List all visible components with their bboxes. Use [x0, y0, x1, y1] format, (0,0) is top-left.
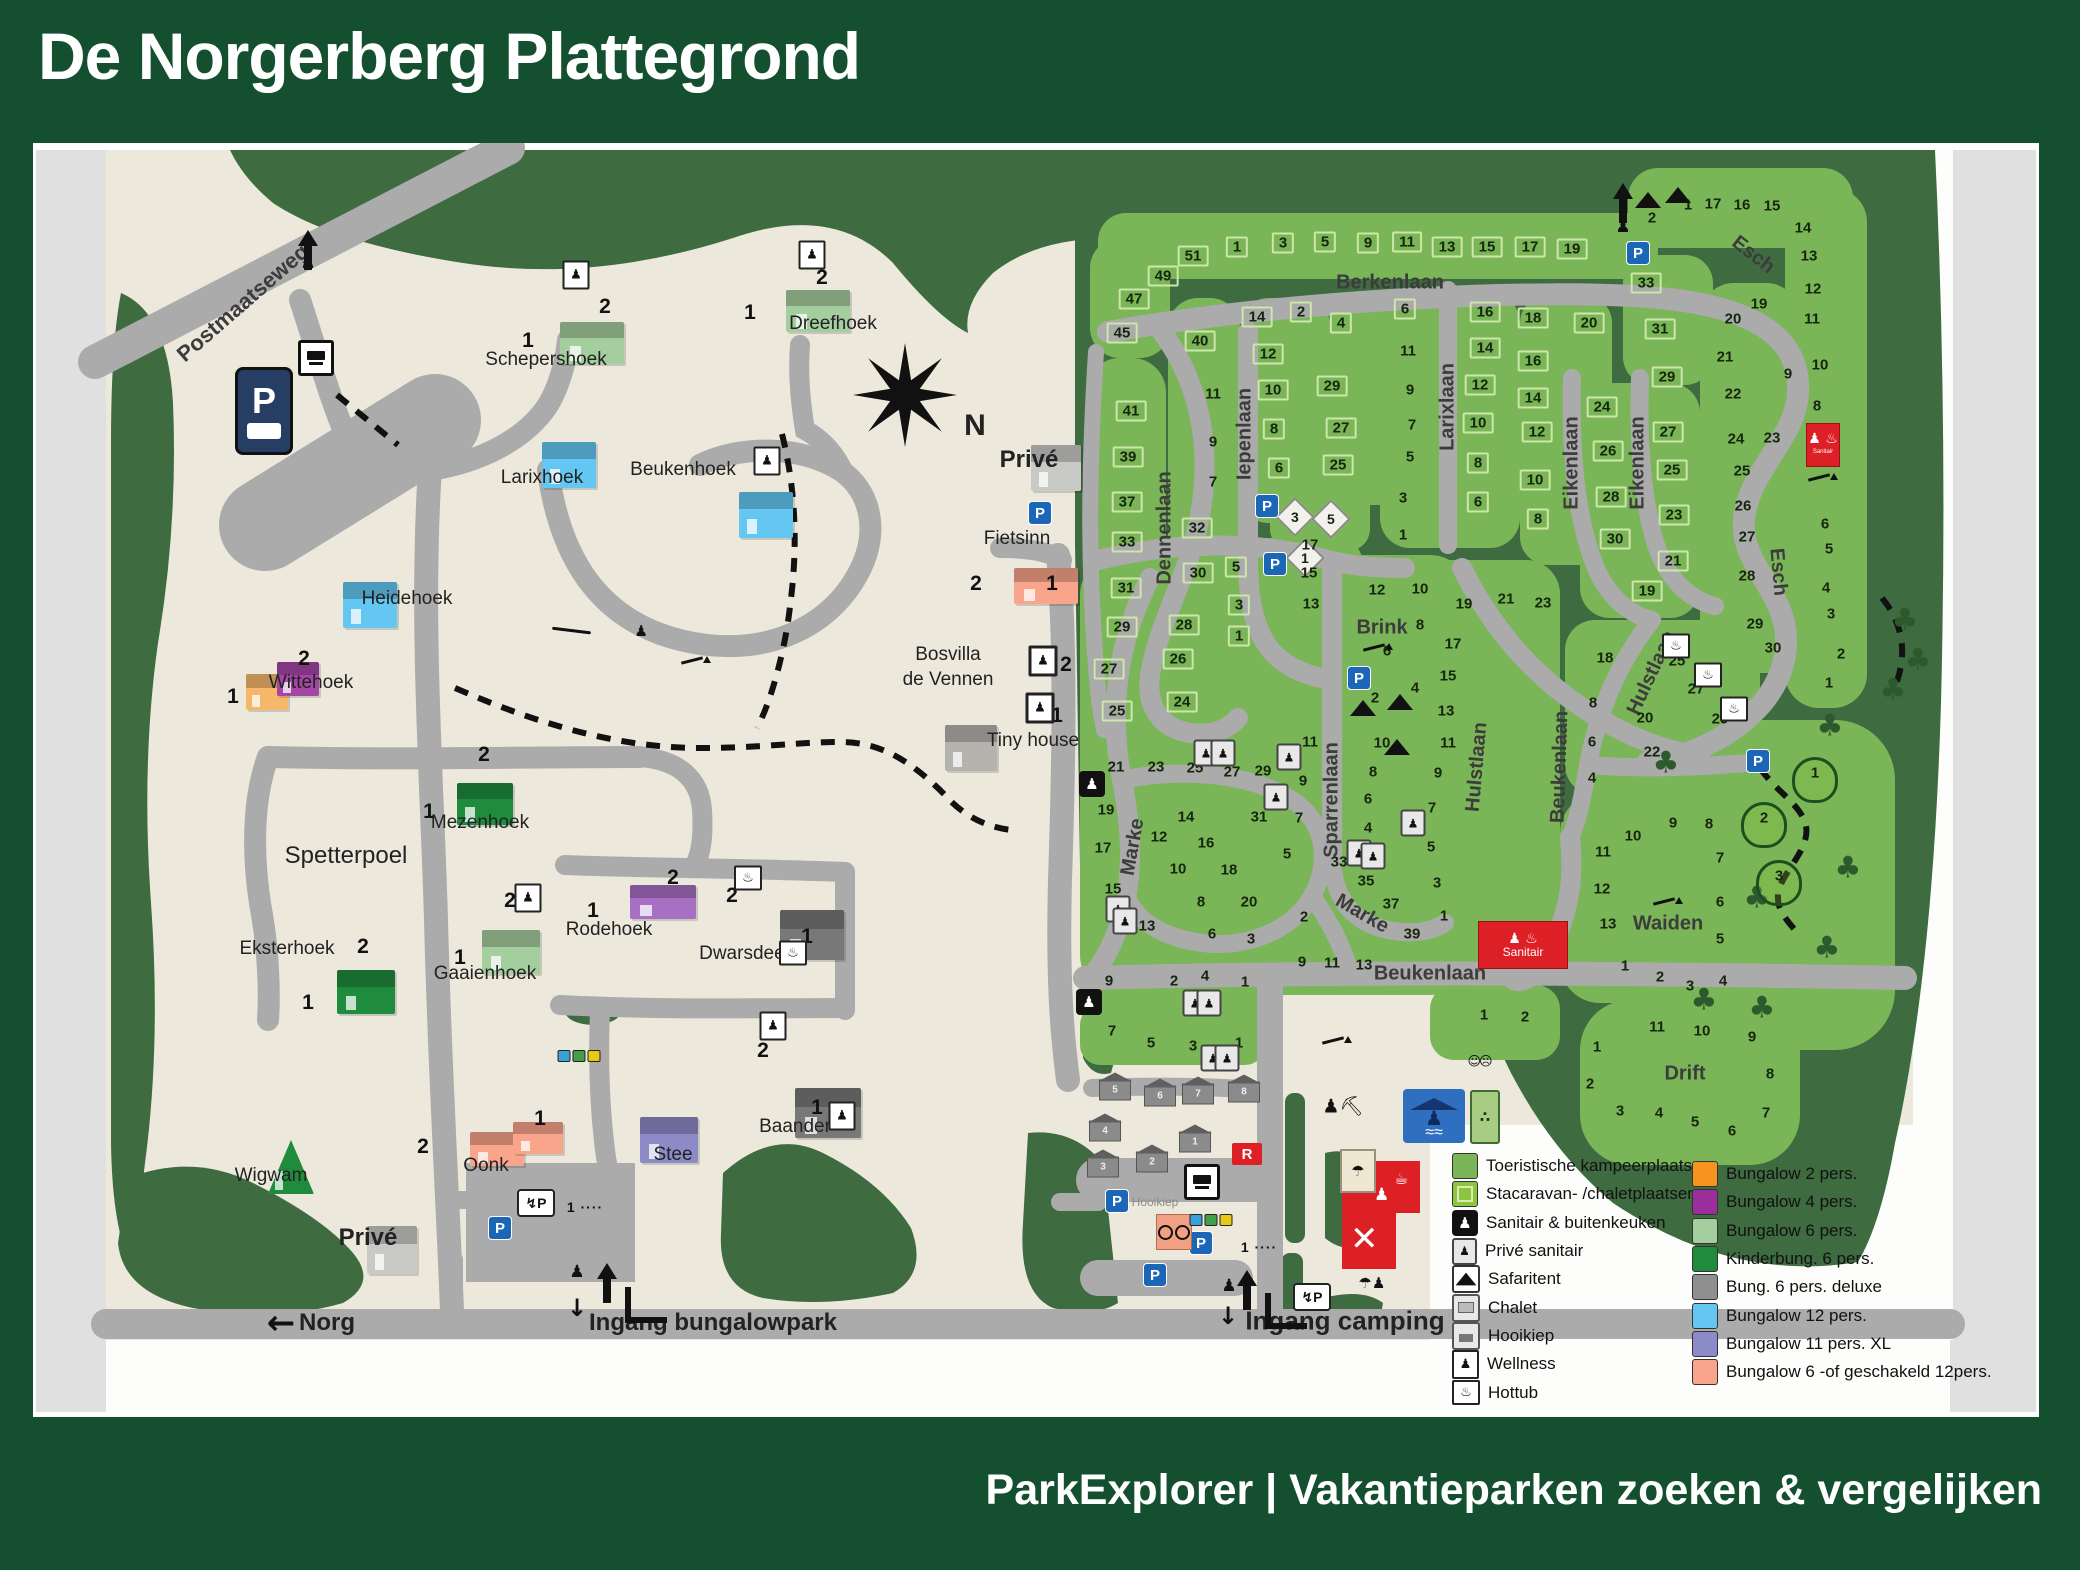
place-label-heidehoek: Heidehoek	[362, 588, 453, 610]
unit-number: 2	[417, 1135, 429, 1159]
pitch-marker-5: 5	[1283, 846, 1291, 863]
pitch-marker-9: 9	[1784, 366, 1792, 383]
pitch-marker-6: 6	[1268, 458, 1290, 479]
place-label-dreefhoek: Dreefhoek	[789, 313, 877, 335]
pitch-marker-21: 21	[1498, 591, 1515, 608]
pitch-marker-25: 25	[1323, 455, 1354, 476]
pitch-marker-22: 22	[1644, 744, 1661, 761]
pitch-marker-7: 7	[1108, 1023, 1116, 1040]
pitch-marker-8: 8	[1766, 1066, 1774, 1083]
pitch-marker-24: 24	[1728, 431, 1745, 448]
pitch-marker-5: 5	[1314, 232, 1336, 253]
compass-icon	[845, 335, 965, 455]
place-label-mezenhoek: Mezenhoek	[431, 812, 529, 834]
pitch-marker-33: 33	[1112, 532, 1143, 553]
zipline-icon: ♟	[552, 608, 648, 652]
uparrow-icon	[1613, 183, 1633, 199]
pitch-marker-21: 21	[1658, 551, 1689, 572]
pitch-marker-28: 28	[1596, 487, 1627, 508]
wellness-icon: ♟	[1452, 1350, 1479, 1379]
pitch-marker-2: 2	[1290, 302, 1312, 323]
color-swatch	[1692, 1218, 1718, 1244]
pitch-marker-4: 4	[1822, 580, 1830, 597]
tent-icon	[1635, 192, 1661, 208]
color-swatch	[1692, 1246, 1718, 1272]
hottub-icon: ♨	[1694, 663, 1722, 688]
tent-icon	[1384, 739, 1410, 755]
hottub-icon: ♨	[734, 866, 762, 891]
pitch-marker-27: 27	[1326, 418, 1357, 439]
pitch-marker-8: 8	[1369, 764, 1377, 781]
pitch-marker-8: 8	[1263, 419, 1285, 440]
pitch-marker-3: 3	[1775, 868, 1783, 885]
legend-item-bungalow-6-pers-: Bungalow 6 pers.	[1692, 1217, 1992, 1245]
street-label-eikenlaan: Eikenlaan	[1627, 416, 1650, 509]
place-label-stee: Stee	[653, 1144, 692, 1166]
pitch-marker-9: 9	[1209, 434, 1217, 451]
pitch-marker-31: 31	[1251, 809, 1268, 826]
pitch-marker-7: 7	[1408, 417, 1416, 434]
place-label-norg: Norg	[299, 1309, 355, 1337]
hottub-icon: ♨	[1452, 1380, 1480, 1405]
pitch-marker-2: 2	[1760, 810, 1768, 827]
camper-service-icon	[298, 340, 334, 376]
pitch-marker-8: 8	[1197, 894, 1205, 911]
pitch-marker-8: 8	[1416, 617, 1424, 634]
pitch-marker-10: 10	[1694, 1023, 1711, 1040]
street-label-larixlaan: Larixlaan	[1437, 363, 1460, 451]
pitch-marker-29: 29	[1255, 763, 1272, 780]
legend-label: Bungalow 6 pers.	[1726, 1221, 1857, 1241]
sw-chalet-icon	[1452, 1181, 1478, 1207]
pitch-marker-2: 2	[1300, 909, 1308, 926]
pitch-marker-12: 12	[1151, 829, 1168, 846]
hut-icon: 4	[1089, 1121, 1121, 1142]
pitch-marker-11: 11	[1595, 844, 1611, 861]
place-label-oonk: Oonk	[463, 1155, 508, 1177]
pitch-marker-25: 25	[1734, 463, 1751, 480]
pitch-marker-14: 14	[1518, 388, 1549, 409]
pitch-marker-8: 8	[1527, 509, 1549, 530]
pitch-marker-16: 16	[1518, 351, 1549, 372]
color-swatch	[1692, 1274, 1718, 1300]
pitch-marker-12: 12	[1805, 281, 1822, 298]
pitch-marker-3: 3	[1686, 978, 1694, 995]
legend-facilities: Toeristische kampeerplaatsenStacaravan- …	[1452, 1152, 1711, 1407]
pitch-marker-19: 19	[1456, 596, 1473, 613]
pitch-marker-13: 13	[1438, 703, 1455, 720]
pitch-marker-15: 15	[1301, 565, 1318, 582]
pitch-marker-14: 14	[1470, 338, 1501, 359]
pitch-marker-9: 9	[1298, 954, 1306, 971]
pitch-marker-7: 7	[1428, 800, 1436, 817]
color-swatch	[1692, 1189, 1718, 1215]
sanitair-bw-icon: ♟	[1452, 1210, 1478, 1236]
pitch-marker-18: 18	[1221, 862, 1238, 879]
street-label-esch: Esch	[1764, 547, 1791, 597]
tree-icon: ♣	[1892, 603, 1919, 638]
sanred-icon: ♟ ♨Sanitair	[1478, 921, 1568, 969]
place-label-spetterpoel: Spetterpoel	[285, 842, 408, 870]
street-label-eikenlaan: Eikenlaan	[1561, 416, 1584, 509]
umbtable-icon: ☂♟	[1356, 1263, 1388, 1303]
pitch-marker-15: 15	[1472, 237, 1503, 258]
pitch-marker-5: 5	[1406, 449, 1414, 466]
pitch-marker-19: 19	[1751, 296, 1768, 313]
wellness-icon: ♟	[799, 241, 826, 270]
pitch-marker-37: 37	[1112, 492, 1143, 513]
hottub-icon: ♨	[1662, 634, 1690, 659]
hut-icon: 7	[1182, 1084, 1214, 1105]
hut-icon: 8	[1228, 1082, 1260, 1103]
legend-label: Chalet	[1488, 1298, 1537, 1318]
pitch-marker-9: 9	[1105, 973, 1113, 990]
pitch-marker-6: 6	[1467, 492, 1489, 513]
tree-icon: ♣	[1749, 991, 1776, 1026]
pitch-marker-4: 4	[1719, 973, 1727, 990]
place-label-tiny-house: Tiny house	[987, 730, 1079, 752]
bike-icon	[1156, 1214, 1192, 1250]
unit-number: 1	[302, 991, 314, 1015]
legend-item-bungalow-2-pers-: Bungalow 2 pers.	[1692, 1160, 1992, 1188]
pitch-marker-20: 20	[1241, 894, 1258, 911]
legend-item-kinderbung-6-pers-: Kinderbung. 6 pers.	[1692, 1245, 1992, 1273]
wellness-icon: ♟	[760, 1012, 787, 1041]
unit-number: 2	[478, 743, 490, 767]
legend-label: Hottub	[1488, 1383, 1538, 1403]
pitch-marker-7: 7	[1762, 1105, 1770, 1122]
place-label-rodehoek: Rodehoek	[566, 919, 653, 941]
pitch-marker-3: 3	[1272, 233, 1294, 254]
dashes1-icon: 1 ····	[1241, 1239, 1277, 1255]
downarrow-icon: ↓	[1218, 1302, 1238, 1330]
pitch-marker-6: 6	[1364, 791, 1372, 808]
pitch-marker-11: 11	[1804, 311, 1820, 328]
legend-item-chalet: Chalet	[1452, 1293, 1711, 1321]
legend-label: Wellness	[1487, 1354, 1556, 1374]
pitch-marker-13: 13	[1303, 596, 1320, 613]
parking-icon: P	[1028, 501, 1052, 525]
page-title: De Norgerberg Plattegrond	[38, 18, 860, 94]
dashes1-icon: 1 ····	[567, 1199, 603, 1215]
place-label-gaaienhoek: Gaaienhoek	[434, 963, 536, 985]
legend-item-hottub: ♨Hottub	[1452, 1378, 1711, 1406]
pitch-marker-21: 21	[1108, 759, 1125, 776]
rbuild-icon: R	[1232, 1143, 1262, 1165]
pitch-marker-33: 33	[1331, 854, 1348, 871]
tree-icon: ♣	[1691, 983, 1718, 1018]
tinyhouse-icon: ♟	[1029, 646, 1058, 677]
walk-icon: ♟	[569, 1262, 584, 1282]
pitch-marker-21: 21	[1717, 349, 1734, 366]
pitch-marker-12: 12	[1253, 344, 1284, 365]
tent-icon	[1387, 694, 1413, 710]
pitch-marker-35: 35	[1358, 873, 1375, 890]
pitch-marker-13: 13	[1356, 957, 1373, 974]
pitch-marker-20: 20	[1574, 313, 1605, 334]
unit-number: 1	[227, 685, 239, 709]
pitch-marker-5: 5	[1147, 1035, 1155, 1052]
place-label-priv-: Privé	[339, 1224, 398, 1252]
hut-icon: 3	[1087, 1157, 1119, 1178]
street-label-berkenlaan: Berkenlaan	[1336, 272, 1444, 295]
pitch-marker-5: 5	[1825, 541, 1833, 558]
pitch-marker-26: 26	[1163, 649, 1194, 670]
bungalow-building	[337, 970, 395, 1014]
pitch-marker-1: 1	[1241, 974, 1249, 991]
pitch-marker-18: 18	[1597, 650, 1614, 667]
sanitair-bw-icon: ♟	[1079, 771, 1105, 797]
unit-number: 2	[357, 935, 369, 959]
pitch-marker-28: 28	[1169, 615, 1200, 636]
pitch-marker-14: 14	[1795, 220, 1812, 237]
street-label-drift: Drift	[1664, 1063, 1705, 1086]
pitch-marker-15: 15	[1764, 198, 1781, 215]
legend-item-bungalow-11-pers-xl: Bungalow 11 pers. XL	[1692, 1330, 1992, 1358]
legend-item-hooikiep: Hooikiep	[1452, 1322, 1711, 1350]
pitch-marker-33: 33	[1631, 273, 1662, 294]
uparrow-icon	[1237, 1270, 1257, 1286]
pitch-marker-5: 5	[1716, 931, 1724, 948]
pitch-marker-16: 16	[1470, 302, 1501, 323]
pitch-marker-13: 13	[1432, 237, 1463, 258]
pitch-marker-24: 24	[1167, 692, 1198, 713]
pitch-marker-25: 25	[1657, 460, 1688, 481]
pitch-marker-17: 17	[1095, 840, 1112, 857]
pitch-marker-2: 2	[1170, 973, 1178, 990]
pitch-marker-23: 23	[1148, 759, 1165, 776]
unit-number: 2	[667, 866, 679, 890]
pitch-marker-27: 27	[1739, 529, 1756, 546]
pitch-marker-9: 9	[1299, 773, 1307, 790]
pitch-marker-3: 3	[1228, 595, 1250, 616]
pitch-marker-4: 4	[1330, 313, 1352, 334]
legend-label: Privé sanitair	[1485, 1241, 1583, 1261]
tree-icon: ♣	[1835, 851, 1862, 886]
color-swatch	[1692, 1161, 1718, 1187]
pitch-marker-47: 47	[1119, 289, 1150, 310]
camper-service-icon	[1184, 1164, 1220, 1200]
pitch-marker-2: 2	[1521, 1009, 1529, 1026]
page: { "page": { "title": "De Norgerberg Plat…	[0, 0, 2080, 1570]
pitch-marker-7: 7	[1295, 810, 1303, 827]
pitch-marker-9: 9	[1669, 815, 1677, 832]
pitch-marker-11: 11	[1649, 1019, 1665, 1036]
prive-san-icon: ♟	[1215, 1045, 1240, 1072]
pitch-marker-2: 2	[1586, 1076, 1594, 1093]
place-label-de-vennen: de Vennen	[903, 669, 994, 691]
hut-icon: 1	[1179, 1132, 1211, 1153]
legend-label: Bungalow 2 pers.	[1726, 1164, 1857, 1184]
parking-icon: P	[1143, 1263, 1167, 1287]
legend-label: Hooikiep	[1488, 1326, 1554, 1346]
hut-icon: 5	[1099, 1080, 1131, 1101]
legend-label: Bung. 6 pers. deluxe	[1726, 1277, 1882, 1297]
pitch-marker-11: 11	[1392, 232, 1422, 253]
legend-item-toeristische-kampeerplaatsen: Toeristische kampeerplaatsen	[1452, 1152, 1711, 1180]
pitch-marker-10: 10	[1258, 380, 1289, 401]
pitch-marker-9: 9	[1748, 1029, 1756, 1046]
street-label-dennenlaan: Dennenlaan	[1154, 471, 1177, 584]
pitch-marker-1: 1	[1399, 527, 1407, 544]
pitch-number: 3	[1291, 509, 1299, 525]
place-label-fietsinn: Fietsinn	[984, 528, 1051, 550]
prive-san-icon: ♟	[1197, 990, 1222, 1017]
pitch-marker-6: 6	[1728, 1123, 1736, 1140]
parking-icon: P	[1263, 552, 1287, 576]
pitch-marker-8: 8	[1589, 695, 1597, 712]
footer-branding: ParkExplorer | Vakantieparken zoeken & v…	[986, 1466, 2042, 1515]
legend-label: Bungalow 6 -of geschakeld 12pers.	[1726, 1362, 1992, 1382]
pitch-marker-37: 37	[1383, 896, 1400, 913]
pitch-marker-12: 12	[1465, 375, 1496, 396]
place-label-beukenhoek: Beukenhoek	[630, 459, 736, 481]
pitch-marker-39: 39	[1404, 926, 1421, 943]
pitch-marker-30: 30	[1183, 563, 1214, 584]
tent-icon	[1452, 1265, 1480, 1293]
pitch-marker-1: 1	[1480, 1007, 1488, 1024]
pitch-marker-15: 15	[1440, 668, 1457, 685]
legend-label: Safaritent	[1488, 1269, 1561, 1289]
uparrow-icon	[298, 230, 318, 246]
street-label-brink: Brink	[1356, 617, 1407, 640]
pitch-marker-13: 13	[1600, 916, 1617, 933]
pitch-marker-23: 23	[1764, 430, 1781, 447]
downarrow-icon: ↓	[567, 1294, 587, 1322]
pitch-marker-2: 2	[1648, 210, 1656, 227]
pitch-marker-28: 28	[1739, 568, 1756, 585]
elbow-icon	[625, 1287, 667, 1323]
pool-icon: ♟≈≈	[1403, 1089, 1465, 1143]
pitch-marker-23: 23	[1535, 595, 1552, 612]
pitch-marker-10: 10	[1625, 828, 1642, 845]
sanitair-bw-icon: ♟	[1076, 989, 1102, 1015]
legend-label: Sanitair & buitenkeuken	[1486, 1213, 1666, 1233]
wellness-icon: ♟	[754, 447, 781, 476]
place-label-bosvilla: Bosvilla	[915, 644, 980, 666]
leftarrow-icon: ←	[267, 1303, 296, 1343]
parking-icon: P	[1255, 494, 1279, 518]
pitch-marker-30: 30	[1765, 640, 1782, 657]
tree-icon: ♣	[1817, 709, 1844, 744]
place-label-dwarsdeel: Dwarsdeel	[699, 943, 789, 965]
uparrow-icon	[597, 1263, 617, 1279]
hut-icon: 6	[1144, 1086, 1176, 1107]
pitch-marker-12: 12	[1594, 881, 1611, 898]
sand-icon: ♟⛏	[1322, 1095, 1363, 1118]
wellness-icon: ♟	[829, 1102, 856, 1131]
pitch-marker-23: 23	[1659, 505, 1690, 526]
hut-icon: 2	[1136, 1152, 1168, 1173]
pitch-marker-29: 29	[1107, 617, 1138, 638]
pitch-marker-11: 11	[1324, 955, 1340, 972]
pitch-marker-4: 4	[1655, 1105, 1663, 1122]
legend-accommodations: Bungalow 2 pers.Bungalow 4 pers.Bungalow…	[1692, 1160, 1992, 1386]
street-label-beukenlaan: Beukenlaan	[1547, 711, 1574, 824]
tree-icon: ♣	[1905, 643, 1932, 678]
pitch-marker-16: 16	[1198, 835, 1215, 852]
pitch-marker-18: 18	[1518, 308, 1549, 329]
parking-icon: P	[488, 1216, 512, 1240]
tinyhouse-icon: ♟	[1026, 693, 1055, 724]
pitch-marker-10: 10	[1520, 470, 1551, 491]
bins-icon	[1189, 1214, 1234, 1226]
pitch-marker-2: 2	[1837, 646, 1845, 663]
pitch-marker-19: 19	[1632, 581, 1663, 602]
place-label-eksterhoek: Eksterhoek	[239, 938, 334, 960]
place-label-baander: Baander	[759, 1116, 831, 1138]
tent-icon	[1350, 700, 1376, 716]
pitch-marker-20: 20	[1637, 710, 1654, 727]
masks-icon: ☺☹	[1467, 1055, 1490, 1070]
pitch-marker-40: 40	[1185, 331, 1216, 352]
sanred-icon: ♟ ♨Sanitair	[1806, 423, 1840, 467]
pitch-marker-1: 1	[1811, 765, 1819, 782]
pitch-marker-6: 6	[1821, 516, 1829, 533]
pitch-marker-25: 25	[1102, 701, 1133, 722]
legend-item-bungalow-6-of-geschakeld-12pers-: Bungalow 6 -of geschakeld 12pers.	[1692, 1358, 1992, 1386]
pitch-marker-4: 4	[1364, 820, 1372, 837]
pitch-marker-29: 29	[1652, 367, 1683, 388]
pitch-marker-17: 17	[1515, 237, 1546, 258]
tree-icon: ♣	[1814, 931, 1841, 966]
pitch-marker-8: 8	[1705, 816, 1713, 833]
color-swatch	[1692, 1331, 1718, 1357]
hottub-icon: ♨	[779, 941, 807, 966]
unit-number: 1	[534, 1107, 546, 1131]
pitch-marker-1: 1	[1825, 675, 1833, 692]
legend-item-sanitair-buitenkeuken: ♟Sanitair & buitenkeuken	[1452, 1209, 1711, 1237]
pitch-marker-6: 6	[1716, 894, 1724, 911]
pitch-number: 5	[1327, 511, 1335, 527]
pitch-marker-2: 2	[1656, 969, 1664, 986]
pitch-marker-26: 26	[1593, 441, 1624, 462]
seesaw-icon	[1322, 1034, 1352, 1046]
pitch-marker-9: 9	[1357, 233, 1379, 254]
pitch-marker-45: 45	[1107, 323, 1138, 344]
pitch-marker-11: 11	[1400, 343, 1416, 360]
seesaw-icon	[1808, 471, 1838, 483]
pitch-marker-24: 24	[1587, 397, 1618, 418]
legend-item-bung-6-pers-deluxe: Bung. 6 pers. deluxe	[1692, 1273, 1992, 1301]
pitch-marker-8: 8	[1467, 453, 1489, 474]
color-swatch	[1692, 1359, 1718, 1385]
seesaw-icon	[1653, 895, 1683, 907]
unit-number: 2	[1060, 653, 1072, 677]
unit-number: 2	[757, 1039, 769, 1063]
pitch-marker-13: 13	[1139, 918, 1156, 935]
pitch-marker-10: 10	[1412, 581, 1429, 598]
prive-san-icon: ♟	[1211, 740, 1236, 767]
parking-icon: P	[1626, 241, 1650, 265]
legend-label: Stacaravan- /chaletplaatsen	[1486, 1184, 1697, 1204]
place-label-schepershoek: Schepershoek	[485, 349, 606, 371]
pitch-marker-49: 49	[1148, 266, 1179, 287]
place-label-larixhoek: Larixhoek	[501, 467, 583, 489]
pitch-marker-17: 17	[1445, 636, 1462, 653]
elbow-icon	[1265, 1293, 1307, 1329]
prive-san-icon: ♟	[1361, 843, 1386, 870]
pitch-marker-11: 11	[1302, 734, 1318, 751]
place-label-priv-: Privé	[1000, 446, 1059, 474]
sw-camp-icon	[1452, 1153, 1478, 1179]
pitch-marker-7: 7	[1716, 850, 1724, 867]
pitch-marker-5: 5	[1225, 557, 1247, 578]
pitch-marker-19: 19	[1098, 802, 1115, 819]
pitch-marker-12: 12	[1369, 582, 1386, 599]
seesaw-icon	[1363, 641, 1393, 653]
unit-number: 2	[816, 266, 828, 290]
